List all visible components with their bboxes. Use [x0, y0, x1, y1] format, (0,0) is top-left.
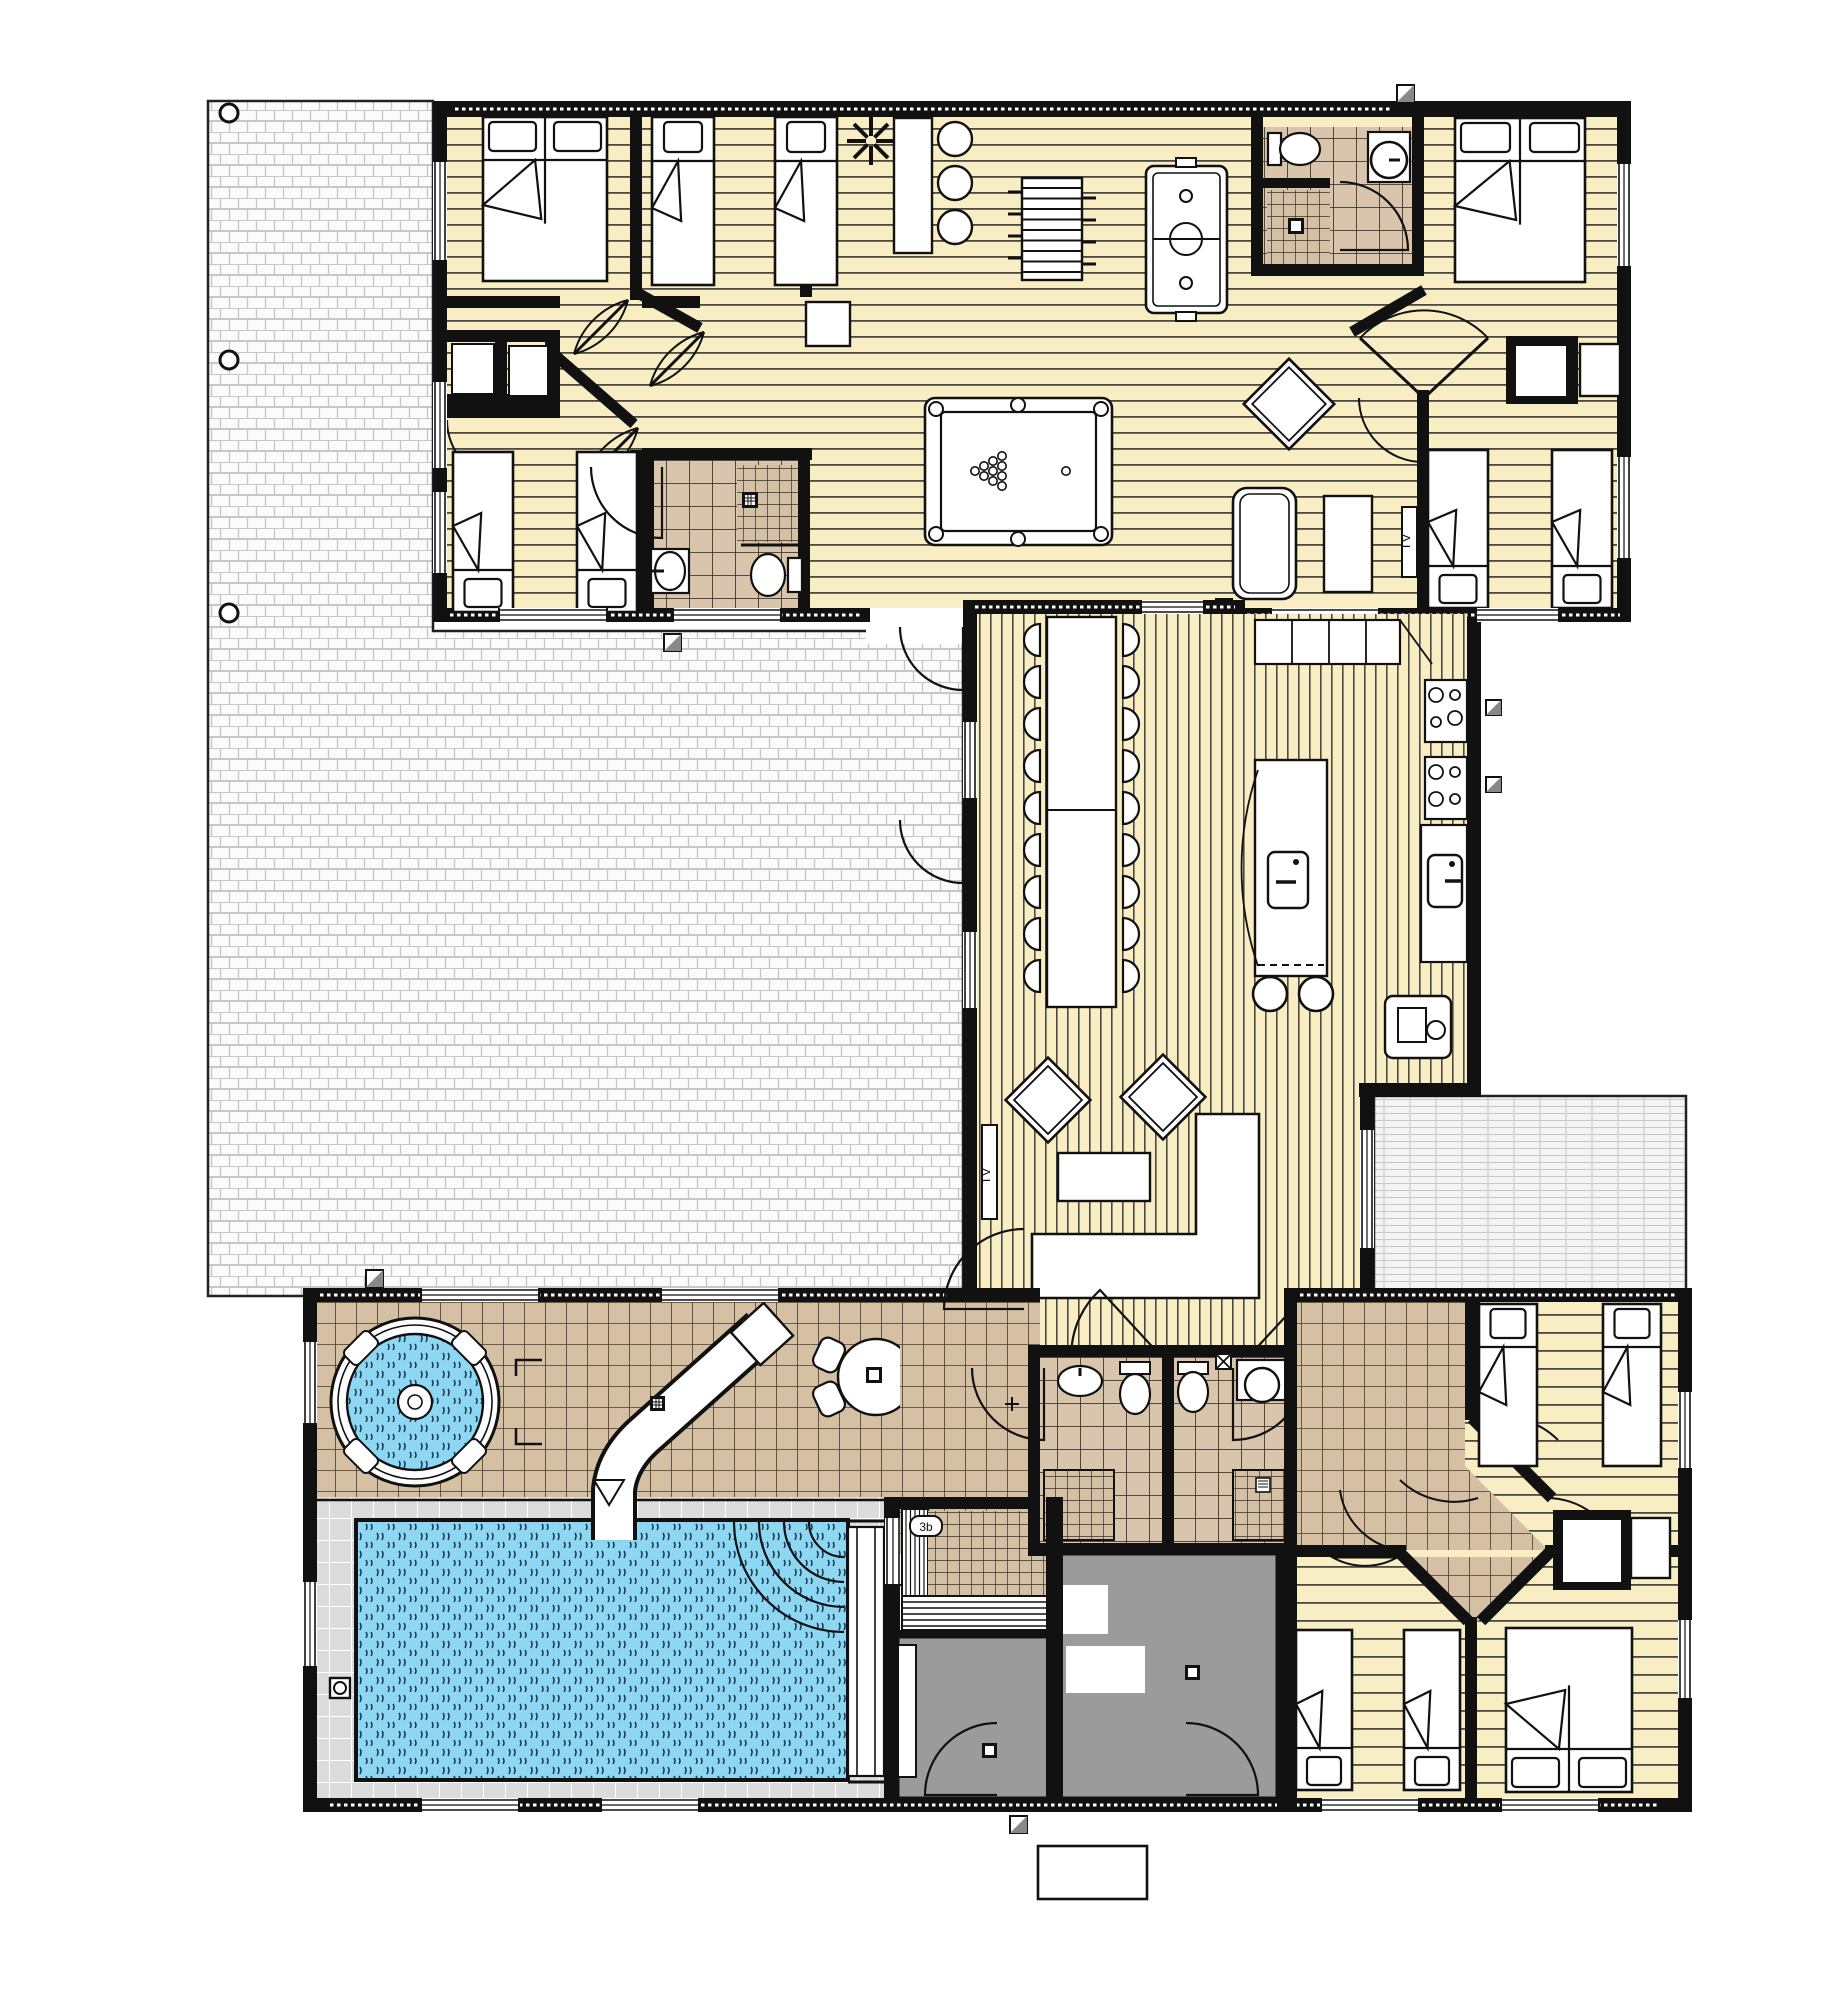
svg-text:3b: 3b: [919, 1520, 933, 1534]
svg-text:TV: TV: [978, 1167, 993, 1184]
svg-text:TV: TV: [1398, 533, 1413, 550]
